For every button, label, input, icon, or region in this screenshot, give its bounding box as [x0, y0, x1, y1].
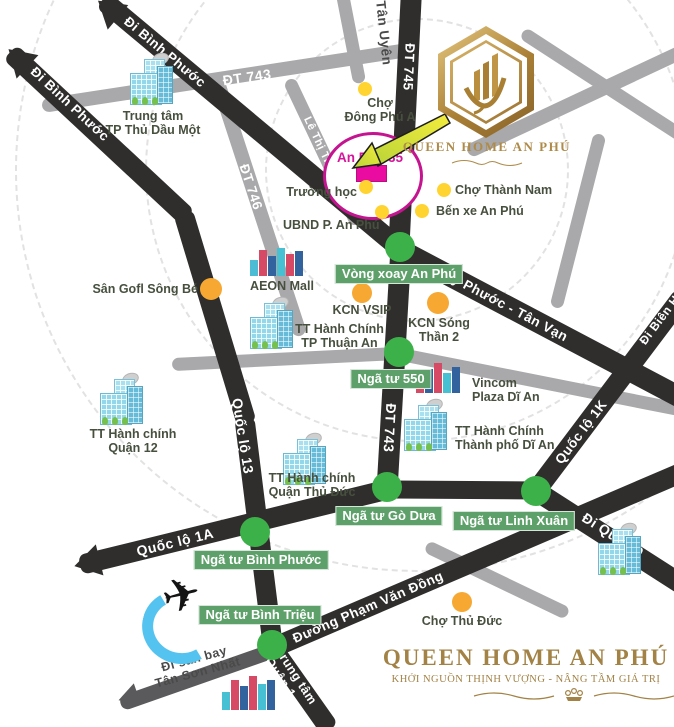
footer-title: QUEEN HOME AN PHÚ: [378, 645, 674, 671]
intersection-dot-vong-xoay-an-phu: [385, 232, 415, 262]
footer-tagline: KHỞI NGUỒN THỊNH VƯỢNG - NÂNG TẦM GIÁ TR…: [378, 674, 674, 685]
poi-dot-kcn-song-than-2: [427, 292, 449, 314]
poi-dot-ben-xe-an-phu: [415, 204, 429, 218]
intersection-dot-nga-tu-go-dua: [372, 472, 402, 502]
mall-icon-bottom-left: [222, 676, 275, 710]
building-label-thuan-an: TT Hành Chính TP Thuận An: [292, 323, 387, 351]
building-label-aeon-mall: AEON Mall: [244, 280, 320, 294]
building-icon-quan-12: [100, 376, 146, 428]
poi-dot-kcn-vsip: [352, 283, 372, 303]
building-label-thu-dau-mot: Trung tâm TP Thủ Dầu Một: [92, 110, 214, 138]
logo-flourish: [452, 158, 522, 168]
intersection-tag-nga-tu-550: Ngã tư 550: [350, 369, 431, 389]
road-label-dt743-mid: ĐT 743: [381, 403, 400, 453]
intersection-dot-nga-tu-binh-phuoc: [240, 517, 270, 547]
poi-label-ben-xe-an-phu: Bến xe An Phú: [436, 205, 541, 219]
intersection-tag-nga-tu-binh-trieu: Ngã tư Bình Triệu: [198, 605, 321, 625]
footer-flourish: [474, 687, 674, 705]
poi-dot-ubnd-an-phu: [375, 205, 389, 219]
mall-icon-aeon: [250, 248, 303, 276]
poi-label-kcn-vsip: KCN VSIP: [330, 304, 394, 318]
footer-brand: QUEEN HOME AN PHÚ KHỞI NGUỒN THỊNH VƯỢNG…: [378, 645, 674, 708]
poi-label-ubnd-an-phu: UBND P. An Phú: [283, 219, 383, 233]
building-label-vincom: Vincom Plaza Dĩ An: [472, 377, 564, 405]
building-icon-thuan-an: [250, 300, 296, 352]
building-icon-southeast: [598, 526, 644, 578]
intersection-dot-nga-tu-linh-xuan: [521, 476, 551, 506]
building-icon-di-an: [404, 402, 450, 454]
airport-arrowhead: [115, 683, 141, 710]
poi-dot-cho-thu-duc: [452, 592, 472, 612]
road-label-dt745: ĐT 745: [400, 43, 417, 91]
logo-building-check-icon: [460, 48, 512, 114]
poi-dot-san-golf-song-be: [200, 278, 222, 300]
poi-label-kcn-song-than-2: KCN Sóng Thần 2: [402, 317, 476, 345]
poi-label-san-golf-song-be: Sân Gofl Sông Bé: [86, 283, 198, 297]
building-icon-thu-dau-mot: [130, 56, 176, 108]
location-map: Đi Bình Phước Đi Bình Phước ĐT 745 Tân U…: [0, 0, 674, 727]
building-label-tp-di-an: TT Hành Chính Thành phố Dĩ An: [455, 425, 567, 453]
logo-wordmark: QUEEN HOME AN PHÚ: [398, 139, 576, 155]
intersection-tag-vong-xoay-an-phu: Vòng xoay An Phú: [335, 264, 463, 284]
intersection-tag-nga-tu-linh-xuan: Ngã tư Linh Xuân: [453, 511, 575, 531]
poi-label-cho-thu-duc: Chợ Thủ Đức: [420, 615, 504, 629]
poi-dot-cho-thanh-nam: [437, 183, 451, 197]
poi-label-truong-hoc: Trường học: [281, 186, 357, 200]
poi-label-cho-thanh-nam: Chợ Thành Nam: [455, 184, 565, 198]
intersection-tag-nga-tu-binh-phuoc: Ngã tư Bình Phước: [194, 550, 329, 570]
intersection-dot-nga-tu-binh-trieu: [257, 630, 287, 660]
queen-home-logo: [438, 26, 534, 138]
building-label-quan-thu-duc: TT Hành chính Quận Thủ Đức: [266, 472, 358, 500]
poi-dot-cho-dong-phu-a: [358, 82, 372, 96]
intersection-tag-nga-tu-go-dua: Ngã tư Gò Dưa: [335, 506, 442, 526]
building-label-quan-12: TT Hành chính Quận 12: [78, 428, 188, 456]
